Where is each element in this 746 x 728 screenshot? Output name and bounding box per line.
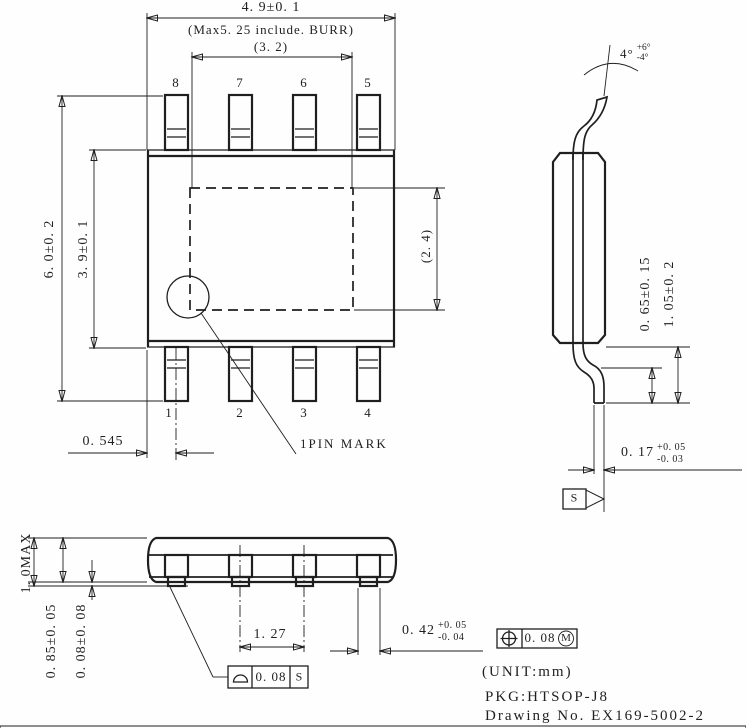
leader-line [170,587,213,677]
drawing-number: Drawing No. EX169-5002-2 [485,708,705,725]
lead-angle-tolerance: +6° -4° [637,43,651,64]
lead-width-plus: +0. 05 [438,620,467,632]
dim-body-thickness-label: 0. 85±0. 05 [44,604,60,679]
lead-width-value: 0. 42 [402,623,435,639]
side-body-outline [553,153,605,343]
dim-pin1-offset-label: 0. 545 [83,434,124,450]
seating-tolerance-value: 0. 08 [256,669,287,685]
pin-mark-label: 1PIN MARK [300,436,388,452]
front-body-outline [148,538,396,582]
pin-7 [229,95,252,150]
package-name: PKG:HTSOP-J8 [485,689,609,706]
lead-thickness-value: 0. 17 [621,445,654,461]
pin-bend-lines [167,129,378,137]
bottom-pins [165,347,380,401]
pin-6 [293,95,316,150]
front-pin [293,555,316,577]
pin-1 [165,347,188,401]
dim-body-width-label: 4. 9±0. 1 [242,0,301,16]
lead-top-bend [573,97,607,160]
pin-3 [293,347,316,401]
dim-lead-height-label: 1. 05±0. 2 [662,261,678,328]
lead-thickness-tolerance: +0. 05 -0. 03 [657,442,686,465]
pin-8 [165,95,188,150]
unit-note: (UNIT:mm) [482,664,573,681]
pin-bend-lines [167,360,378,368]
datum-target-triangle [586,490,604,508]
seating-tolerance-datum: S [296,670,303,685]
pin-1-mark-circle [167,276,209,318]
pin-number-label: 3 [300,405,308,421]
lead-thickness-plus: +0. 05 [657,442,686,454]
pin-2 [229,347,252,401]
position-tolerance-value: 0. 08 [525,630,556,646]
dim-max-burr-label: (Max5. 25 include. BURR) [188,22,354,38]
dim-overall-height-max-label: 1. 0MAX [19,533,35,594]
lead-angle-label: 4° +6° -4° [620,43,651,64]
drawing-linework [0,0,746,728]
lead-width-tolerance: +0. 05 -0. 04 [438,620,467,643]
top-view [57,13,445,462]
dim-foot-length-label: 0. 65±0. 15 [638,257,654,332]
package-dimension-drawing: 4. 9±0. 1 (Max5. 25 include. BURR) (3. 2… [0,0,746,728]
pin-number-label: 4 [364,405,372,421]
pin-number-label: 7 [236,75,244,91]
lead-angle-plus: +6° [637,43,651,53]
lead-angle-minus: -4° [637,53,651,63]
pin-number-label: 5 [364,75,372,91]
position-tolerance-modifier: M [561,632,571,644]
lead-angle-value: 4° [620,46,634,62]
dim-lead-width-label: 0. 42 +0. 05 -0. 04 [402,620,467,643]
front-pin [165,555,188,577]
dim-pad-width-label: (3. 2) [254,39,288,55]
angle-arc [584,63,638,75]
pin-4 [357,347,380,401]
dim-lead-thickness-label: 0. 17 +0. 05 -0. 03 [621,442,686,465]
dim-overall-height-label: 6. 0±0. 2 [42,220,58,279]
dim-body-height-label: 3. 9±0. 1 [76,220,92,279]
front-pin [229,555,252,577]
exposed-pad-dashed-rect [190,188,353,310]
front-pin [357,555,380,577]
pin-number-label: 1 [165,405,173,421]
dim-standoff-label: 0. 08±0. 08 [74,604,90,679]
pin-number-label: 6 [300,75,308,91]
angle-reference-line [604,45,610,96]
seating-plane-icon [234,675,248,682]
lead-thickness-minus: -0. 03 [657,454,686,466]
pin-mark-leader-line [201,313,296,454]
dim-pad-height-label: (2. 4) [418,229,434,263]
pin-5 [357,95,380,150]
dim-lead-pitch-label: 1. 27 [254,627,287,643]
lead-width-minus: -0. 04 [438,632,467,644]
pin-number-label: 2 [236,405,244,421]
pin-number-label: 8 [172,75,180,91]
lead-bottom-bend [573,343,604,403]
top-pins [165,95,380,150]
datum-s-label: S [571,491,578,506]
